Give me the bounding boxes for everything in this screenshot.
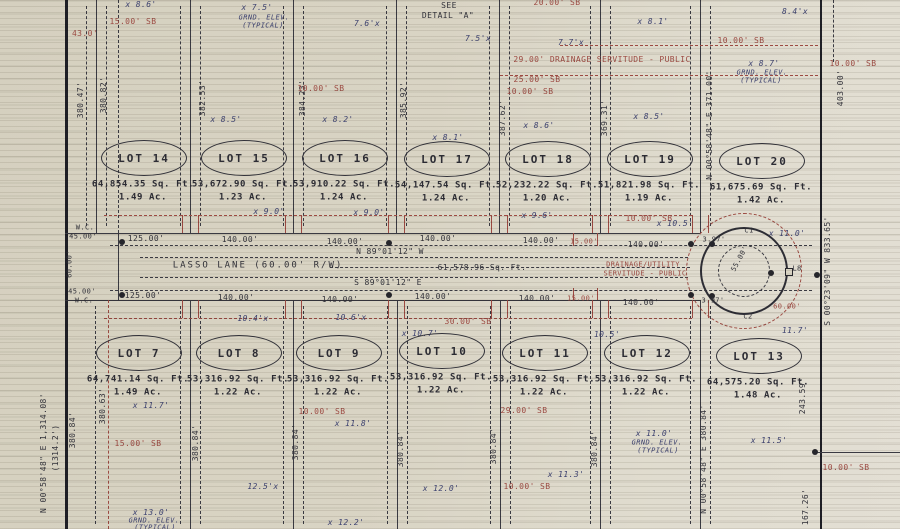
lot-area: 53,316.92 Sq. Ft. <box>390 374 492 383</box>
line <box>490 306 491 524</box>
line <box>285 300 286 318</box>
lot-depth-label: 369.31' <box>601 100 609 137</box>
corner-monument-dot <box>814 272 820 278</box>
lot-depth-label: 403.00' <box>837 70 845 107</box>
dimension-label: 140.00' <box>628 241 665 249</box>
lot-oval: LOT 8 <box>196 335 282 371</box>
line <box>388 215 389 233</box>
lot-depth-label: 167.26' <box>802 489 810 526</box>
lot-label: LOT 17 <box>421 153 473 166</box>
lot-depth-label: 380.47' <box>77 82 85 119</box>
line <box>104 215 692 216</box>
line <box>386 6 387 226</box>
ground-elevation-label: x 8.5' <box>210 116 241 124</box>
lot-label: LOT 16 <box>319 152 371 165</box>
line <box>404 215 405 233</box>
line <box>388 300 389 318</box>
lot-acres: 1.48 Ac. <box>734 392 782 401</box>
line <box>108 300 109 529</box>
line <box>491 215 492 233</box>
dimension-label: 15.00' <box>567 296 595 303</box>
ground-elevation-label: x 8.7' <box>748 60 779 68</box>
dimension-label: 3.97' <box>702 237 725 244</box>
ground-elevation-label: x 8.6' <box>125 1 156 9</box>
corner-monument-dot <box>386 240 392 246</box>
lot-acres: 1.22 Ac. <box>214 389 262 398</box>
ground-elevation-label: x 9.6' <box>521 212 552 220</box>
lot-label: LOT 7 <box>117 347 160 360</box>
lot-label: LOT 20 <box>736 155 788 168</box>
lot-oval: LOT 14 <box>101 140 187 176</box>
line <box>700 0 701 233</box>
dimension-label: 15.00' <box>570 239 598 246</box>
lot-area: 53,316.92 Sq. Ft. <box>595 376 697 385</box>
line <box>86 6 87 226</box>
witness-corner-label: W.C. <box>76 225 94 232</box>
lot-depth-label: 385.92' <box>400 82 408 119</box>
lot-oval: LOT 7 <box>96 335 182 371</box>
ground-elevation-label: 7.7'x <box>558 39 584 47</box>
ground-elevation-label: x 8.5' <box>633 113 664 121</box>
ground-elevation-label: 10.4'x <box>237 315 268 323</box>
lot-oval: LOT 11 <box>502 335 588 371</box>
servitude-label: DRAINAGE/UTILITY <box>606 262 680 269</box>
line <box>301 215 302 233</box>
witness-corner-label: W.C. <box>75 298 93 305</box>
lot-oval: LOT 15 <box>201 140 287 176</box>
ground-elevation-label: 10.5' <box>594 331 620 339</box>
lot-label: LOT 8 <box>217 347 260 360</box>
line <box>833 0 834 62</box>
dimension-label: 125.00' <box>125 292 162 300</box>
ground-elevation-label: 7.6'x <box>354 20 380 28</box>
corner-monument-dot <box>812 449 818 455</box>
dimension-label: 45.00' <box>68 289 96 296</box>
ground-elevation-label: GRND. ELEV. <box>239 15 290 22</box>
lot-label: LOT 12 <box>621 347 673 360</box>
line <box>140 257 688 258</box>
street-bearing: S 89°01'12" E <box>354 279 422 287</box>
line <box>608 300 609 318</box>
ground-elevation-label: x 11.8' <box>335 420 372 428</box>
lot-acres: 1.22 Ac. <box>314 389 362 398</box>
ground-elevation-label: x 11.5' <box>751 437 788 445</box>
ground-elevation-label: x 11.0' <box>636 430 673 438</box>
lot-oval: LOT 18 <box>505 141 591 177</box>
servitude-label: 29.00' DRAINAGE SERVITUDE - PUBLIC <box>513 56 690 64</box>
corner-monument-dot <box>688 292 694 298</box>
line <box>293 300 294 529</box>
dimension-label: 140.00' <box>523 237 560 245</box>
ground-elevation-label: 8.4'x <box>782 8 808 16</box>
lot-oval: LOT 13 <box>716 338 802 374</box>
ground-elevation-label: 11.7' <box>782 327 808 335</box>
ground-elevation-label: x 9.0' <box>253 208 284 216</box>
boundary-bearing: S 00°23'09" W 833.65' <box>824 216 832 326</box>
lot-area: 53,910.22 Sq. Ft. <box>293 181 395 190</box>
dimension-label: 140.00' <box>519 295 556 303</box>
subdivision-plat-map: SEEDETAIL "A"LASSO LANE (60.00' R/W)N 89… <box>0 0 900 529</box>
line <box>710 306 711 524</box>
dimension-label: 140.00' <box>322 296 359 304</box>
line <box>592 300 593 318</box>
line <box>387 306 388 524</box>
lot-acres: 1.24 Ac. <box>320 194 368 203</box>
lot-depth-label: 380.84' <box>192 425 200 462</box>
ground-elevation-label: x 12.0' <box>423 485 460 493</box>
ground-elevation-label: (TYPICAL) <box>242 23 284 30</box>
setback-label: 10.00' SB <box>504 483 551 491</box>
street-name: LASSO LANE (60.00' R/W) <box>173 262 344 271</box>
lot-area: 64,575.20 Sq. Ft. <box>707 379 809 388</box>
line <box>293 0 294 233</box>
detail-note: DETAIL "A" <box>422 12 474 20</box>
lot-acres: 1.49 Ac. <box>114 389 162 398</box>
setback-label: 10.00' SB <box>299 408 346 416</box>
corner-monument-dot <box>386 292 392 298</box>
lot-depth-label: 387.62' <box>499 100 507 137</box>
ground-elevation-label: x 7.5' <box>241 4 272 12</box>
setback-label: 29.00' SB <box>501 407 548 415</box>
lot-depth-label: 380.84' <box>397 431 405 468</box>
line <box>283 306 284 524</box>
line <box>182 215 183 233</box>
line <box>104 318 692 319</box>
line <box>285 215 286 233</box>
setback-label: 15.00' SB <box>115 440 162 448</box>
line <box>198 215 199 233</box>
lot-acres: 1.22 Ac. <box>417 387 465 396</box>
dimension-label: 140.00' <box>327 238 364 246</box>
line <box>65 300 700 301</box>
corner-monument-dot <box>768 270 774 276</box>
lot-depth-label: 380.63' <box>99 388 107 425</box>
line <box>560 45 818 46</box>
lot-acres: 1.22 Ac. <box>520 389 568 398</box>
detail-note: SEE <box>441 2 457 10</box>
lot-depth-label: 380.82' <box>100 77 108 114</box>
lot-area: 53,316.92 Sq. Ft. <box>287 376 389 385</box>
dimension-label: 60.00' <box>773 304 801 311</box>
ground-elevation-label: 7.5'x <box>465 35 491 43</box>
lot-acres: 1.20 Ac. <box>523 195 571 204</box>
setback-label: 10.00' SB <box>507 88 554 96</box>
line <box>509 6 510 226</box>
ground-elevation-label: x 8.6' <box>523 122 554 130</box>
lot-area: 53,316.92 Sq. Ft. <box>493 376 595 385</box>
line <box>397 300 398 529</box>
dimension-label: 140.00' <box>218 294 255 302</box>
line <box>608 215 609 233</box>
line <box>190 0 191 233</box>
line <box>692 300 693 318</box>
curve-label: C1 <box>744 228 753 235</box>
lot-area: 61,675.69 Sq. Ft. <box>710 184 812 193</box>
lot-oval: LOT 20 <box>719 143 805 179</box>
line <box>507 215 508 233</box>
lot-label: LOT 11 <box>519 347 571 360</box>
line <box>396 0 397 233</box>
lot-acres: 1.42 Ac. <box>737 197 785 206</box>
line <box>590 306 591 524</box>
line <box>95 306 96 524</box>
lot-depth-label: 380.84' <box>292 424 300 461</box>
setback-label: 10.00' SB <box>718 37 765 45</box>
dimension-label: 43.0' <box>72 30 98 38</box>
dimension-label: 60.00' <box>67 250 74 278</box>
lot-depth-label: N 00°58'48" E 380.84' <box>700 404 708 514</box>
lot-label: LOT 14 <box>118 152 170 165</box>
ground-elevation-label: x 11.0' <box>769 230 806 238</box>
line <box>690 6 691 226</box>
dimension-label: 140.00' <box>415 293 452 301</box>
line <box>190 300 191 529</box>
ground-elevation-label: GRND. ELEV. <box>737 70 788 77</box>
line <box>182 300 183 318</box>
line <box>510 306 511 524</box>
setback-label: 10.00' SB <box>823 464 870 472</box>
street-bearing: N 89°01'12" W <box>356 248 424 256</box>
ground-elevation-label: x 11.7' <box>133 402 170 410</box>
dimension-label: 140.00' <box>222 236 259 244</box>
lot-acres: 1.23 Ac. <box>219 194 267 203</box>
boundary-bearing: (1314.2') <box>52 425 60 472</box>
line <box>198 300 199 318</box>
lot-depth-label: N 00°58'48" E 371.00' <box>706 70 714 180</box>
ground-elevation-label: (TYPICAL) <box>637 448 679 455</box>
lot-depth-label: 380.84' <box>69 412 77 449</box>
lot-oval: LOT 9 <box>296 335 382 371</box>
servitude-label: SERVITUDE - PUBLIC <box>603 271 686 278</box>
ground-elevation-label: x 11.3' <box>548 471 585 479</box>
line <box>690 306 691 524</box>
setback-label: 25.00' SB <box>514 76 561 84</box>
lot-depth-label: 380.84' <box>591 431 599 468</box>
line <box>200 306 201 524</box>
ground-elevation-label: x 12.2' <box>328 519 365 527</box>
lot-area: 54,147.54 Sq. Ft. <box>395 182 497 191</box>
ground-elevation-label: x 9.0' <box>353 209 384 217</box>
setback-label: 20.00' SB <box>534 0 581 7</box>
lot-label: LOT 10 <box>416 345 468 358</box>
ground-elevation-label: x 8.2' <box>322 116 353 124</box>
line <box>180 6 181 226</box>
dimension-label: 45.00' <box>69 234 97 241</box>
line <box>283 6 284 226</box>
line <box>404 300 405 318</box>
line <box>180 306 181 524</box>
lot-acres: 1.22 Ac. <box>622 389 670 398</box>
boundary-bearing: N 00°58'48" E 1,314.08' <box>40 393 48 513</box>
corner-monument-dot <box>688 241 694 247</box>
ground-elevation-label: x 10.5' <box>657 220 694 228</box>
lot-oval: LOT 12 <box>604 335 690 371</box>
setback-label: 30.00' SB <box>445 318 492 326</box>
lot-area: 64,741.14 Sq. Ft. <box>87 376 189 385</box>
line <box>597 288 598 300</box>
curve-label: C2 <box>743 314 752 321</box>
lot-label: LOT 18 <box>522 153 574 166</box>
street-area: 61,578.96 Sq. Ft. <box>438 264 527 272</box>
ground-elevation-label: (TYPICAL) <box>134 525 176 529</box>
line <box>815 452 900 453</box>
lot-label: LOT 9 <box>317 347 360 360</box>
lot-oval: LOT 17 <box>404 141 490 177</box>
lot-acres: 1.49 Ac. <box>119 194 167 203</box>
lot-oval: LOT 16 <box>302 140 388 176</box>
line <box>590 6 591 226</box>
line <box>592 215 593 233</box>
line <box>507 300 508 318</box>
ground-elevation-label: (TYPICAL) <box>740 78 782 85</box>
lot-area: 53,316.92 Sq. Ft. <box>187 376 289 385</box>
lot-label: LOT 15 <box>218 152 270 165</box>
lot-depth-label: 382.53' <box>199 80 207 117</box>
dimension-label: 140.00' <box>420 235 457 243</box>
lot-label: LOT 19 <box>624 153 676 166</box>
line <box>820 0 822 529</box>
ground-elevation-label: GRND. ELEV. <box>632 440 683 447</box>
lot-acres: 1.19 Ac. <box>625 195 673 204</box>
corner-monument-dot <box>119 239 125 245</box>
line <box>491 300 492 318</box>
lot-area: 64,854.35 Sq. Ft. <box>92 181 194 190</box>
dimension-label: 125.00' <box>128 235 165 243</box>
lot-area: 53,672.90 Sq. Ft. <box>192 181 294 190</box>
lot-depth-label: 380.84' <box>490 428 498 465</box>
ground-elevation-label: x 8.1' <box>637 18 668 26</box>
lot-area: 51,821.98 Sq. Ft. <box>598 182 700 191</box>
ground-elevation-label: 10.6'x <box>335 314 366 322</box>
lot-acres: 1.24 Ac. <box>422 195 470 204</box>
lot-label: LOT 13 <box>733 350 785 363</box>
ground-elevation-label: 12.5'x <box>247 483 278 491</box>
line <box>106 6 107 226</box>
lot-oval: LOT 19 <box>607 141 693 177</box>
setback-label: 10.00' SB <box>298 85 345 93</box>
setback-label: 10.00' SB <box>830 60 877 68</box>
curve-label: L8 <box>792 266 801 273</box>
lot-area: 52,232.22 Sq. Ft. <box>496 182 598 191</box>
line <box>301 300 302 318</box>
dimension-label: 3.97' <box>701 298 724 305</box>
dimension-label: 140.00' <box>623 299 660 307</box>
setback-label: 15.00' SB <box>110 18 157 26</box>
line <box>610 6 611 226</box>
lot-oval: LOT 10 <box>399 333 485 369</box>
